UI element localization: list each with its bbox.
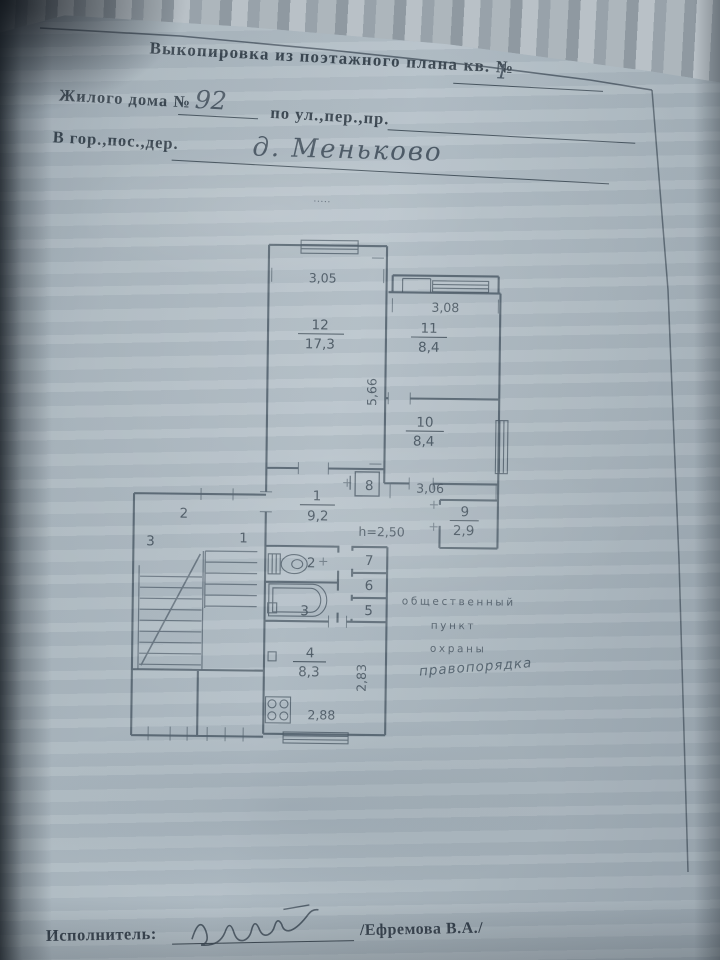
window-room12 — [301, 240, 358, 254]
closet-8-label: 8 — [365, 478, 374, 494]
wc-label: 2 — [307, 555, 316, 571]
floor-plan: 12 17,3 11 8,4 10 8,4 1 9,2 9 2,9 4 8,3 … — [125, 235, 613, 763]
wall-vent-icon — [268, 652, 276, 661]
note-line-1: общественный — [402, 595, 516, 608]
bathroom-fixtures — [267, 554, 327, 662]
toilet-icon — [281, 554, 307, 573]
house-number-handwritten: 92 — [194, 85, 227, 116]
dim-ceiling-height: h=2,50 — [358, 524, 404, 540]
sink-icon — [268, 554, 280, 574]
executor-signature — [187, 900, 348, 949]
executor-name: /Ефремова В.А./ — [360, 920, 484, 940]
note-line-3: охраны — [430, 643, 487, 656]
dim-corridor-width: 3,06 — [416, 481, 444, 496]
dim-room12-depth: 5,66 — [364, 378, 379, 406]
dim-kitchen-width: 2,88 — [307, 707, 335, 722]
settlement-label: В гор.,пос.,дер. — [52, 127, 179, 154]
note-line-2: пункт — [431, 620, 477, 633]
window-right — [495, 421, 508, 474]
balcony-door — [403, 278, 431, 292]
dim-room12-width: 3,05 — [309, 270, 337, 285]
room-12-number: 12 — [311, 317, 328, 333]
room-10-area: 8,4 — [413, 434, 435, 450]
dim-kitchen-depth: 2,83 — [354, 664, 369, 692]
dim-room11-width: 3,08 — [431, 300, 459, 315]
room-1-area: 9,2 — [307, 508, 329, 524]
pencil-note: общественный пункт охраны правопорядка — [401, 595, 534, 681]
stair-mid-label: 2 — [179, 506, 188, 522]
stove-icon — [265, 697, 290, 723]
closet-7-label: 7 — [365, 553, 374, 569]
room-12-area: 17,3 — [305, 336, 335, 352]
window-room11 — [433, 281, 489, 293]
dots-mark: ..... — [313, 193, 331, 205]
apt-number-handwritten: 1 — [495, 59, 509, 84]
apt-number-underline — [453, 83, 603, 92]
room-1-number: 1 — [313, 488, 322, 504]
room-9-number: 9 — [460, 504, 469, 520]
closet-5-label: 5 — [364, 603, 373, 619]
room-4-area: 8,3 — [298, 664, 320, 680]
closet-6-label: 6 — [365, 578, 374, 594]
room-4-number: 4 — [306, 645, 315, 661]
note-line-4-handwritten: правопорядка — [418, 655, 532, 679]
stair-left-label: 3 — [146, 533, 155, 549]
room-10-number: 10 — [416, 415, 433, 431]
photo-of-document: Выкопировка из поэтажного плана кв. № 1 … — [0, 0, 720, 960]
executor-label: Исполнитель: — [46, 924, 157, 946]
paper-sheet: Выкопировка из поэтажного плана кв. № 1 … — [0, 0, 720, 960]
street-label: по ул.,пер.,пр. — [270, 103, 390, 129]
room-11-number: 11 — [420, 321, 437, 337]
room-9-area: 2,9 — [453, 523, 475, 539]
staircase — [138, 550, 257, 670]
bath-label: 3 — [300, 603, 309, 619]
house-number-label: Жилого дома № — [58, 86, 191, 113]
stair-right-label: 1 — [239, 530, 248, 546]
settlement-handwritten: д. Меньково — [252, 133, 443, 168]
room-11-area: 8,4 — [418, 340, 440, 356]
